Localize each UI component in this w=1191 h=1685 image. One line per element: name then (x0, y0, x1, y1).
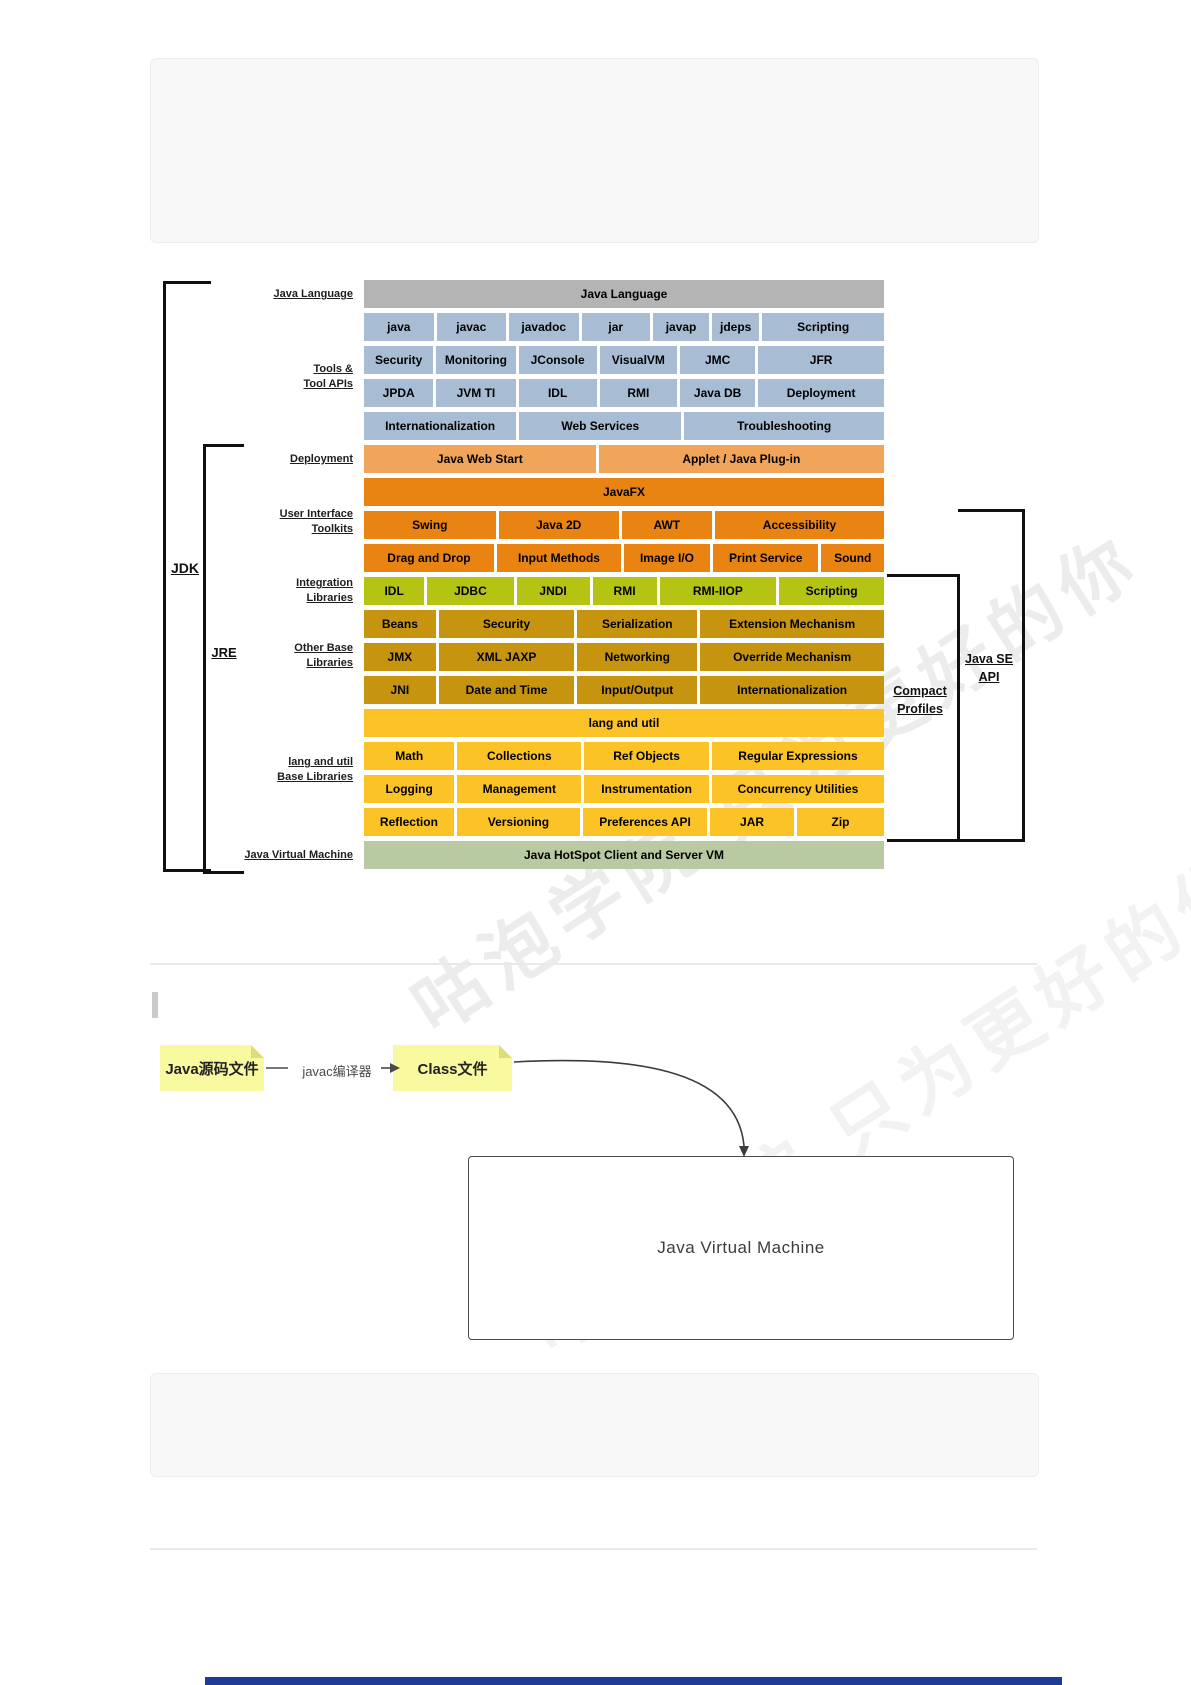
diagram-row: Java HotSpot Client and Server VM (364, 841, 884, 869)
diagram-cell: Internationalization (700, 676, 884, 704)
diagram-cell: Accessibility (715, 511, 884, 539)
java-source-note: Java源码文件 (160, 1045, 264, 1091)
diagram-cell: Security (364, 346, 433, 374)
diagram-cell: Print Service (713, 544, 819, 572)
diagram-cell: XML JAXP (439, 643, 575, 671)
diagram-row: javajavacjavadocjarjavapjdepsScripting (364, 313, 884, 341)
diagram-cell: JVM TI (436, 379, 515, 407)
diagram-row: InternationalizationWeb ServicesTroubles… (364, 412, 884, 440)
diagram-cell: JAR (710, 808, 794, 836)
diagram-cell: javadoc (509, 313, 579, 341)
diagram-cell: Internationalization (364, 412, 516, 440)
diagram-row: MathCollectionsRef ObjectsRegular Expres… (364, 742, 884, 770)
class-file-note-label: Class文件 (417, 1058, 487, 1079)
diagram-cell: Java HotSpot Client and Server VM (364, 841, 884, 869)
diagram-cell: lang and util (364, 709, 884, 737)
jre-label: JRE (205, 645, 243, 660)
diagram-row: Java Language (364, 280, 884, 308)
diagram-cell: Monitoring (436, 346, 515, 374)
diagram-cell: javap (653, 313, 709, 341)
jvm-box-label: Java Virtual Machine (657, 1238, 825, 1258)
diagram-row: IDLJDBCJNDIRMIRMI-IIOPScripting (364, 577, 884, 605)
diagram-cell: Logging (364, 775, 454, 803)
javac-compiler-label: javac编译器 (289, 1061, 385, 1080)
horizontal-divider (150, 963, 1037, 965)
diagram-cell: Collections (457, 742, 581, 770)
diagram-cell: Security (439, 610, 575, 638)
diagram-cell: Troubleshooting (684, 412, 884, 440)
diagram-row: SecurityMonitoringJConsoleVisualVMJMCJFR (364, 346, 884, 374)
diagram-row: LoggingManagementInstrumentationConcurre… (364, 775, 884, 803)
class-to-jvm-arrow (514, 1061, 744, 1146)
diagram-cell: Concurrency Utilities (712, 775, 884, 803)
diagram-row: SwingJava 2DAWTAccessibility (364, 511, 884, 539)
diagram-row: Drag and DropInput MethodsImage I/OPrint… (364, 544, 884, 572)
diagram-cell: Regular Expressions (712, 742, 884, 770)
diagram-cell: Networking (577, 643, 697, 671)
diagram-cell: Image I/O (624, 544, 710, 572)
diagram-row: Java Web StartApplet / Java Plug-in (364, 445, 884, 473)
class-file-note: Class文件 (393, 1045, 512, 1091)
diagram-cell: RMI (600, 379, 677, 407)
java-source-note-label: Java源码文件 (165, 1058, 258, 1079)
diagram-cell: Input/Output (577, 676, 697, 704)
quote-marker (152, 992, 158, 1018)
diagram-cell: Math (364, 742, 454, 770)
horizontal-divider (150, 1548, 1037, 1550)
diagram-cell: javac (437, 313, 507, 341)
diagram-cell: JMC (680, 346, 755, 374)
diagram-cell: Extension Mechanism (700, 610, 884, 638)
diagram-row: JPDAJVM TIIDLRMIJava DBDeployment (364, 379, 884, 407)
diagram-cell: Reflection (364, 808, 454, 836)
diagram-cell: Management (457, 775, 581, 803)
compact-profiles-label: CompactProfiles (886, 682, 954, 718)
diagram-cell: Applet / Java Plug-in (599, 445, 884, 473)
diagram-cell: VisualVM (600, 346, 677, 374)
diagram-cell: Scripting (779, 577, 884, 605)
diagram-cell: Java 2D (499, 511, 619, 539)
diagram-cell: RMI (593, 577, 657, 605)
diagram-cell: AWT (622, 511, 712, 539)
diagram-cell: RMI-IIOP (660, 577, 777, 605)
diagram-row: JavaFX (364, 478, 884, 506)
diagram-cell: Override Mechanism (700, 643, 884, 671)
footer-accent-bar (205, 1677, 1062, 1685)
diagram-cell: Java Web Start (364, 445, 596, 473)
diagram-cell: Zip (797, 808, 884, 836)
note-fold-corner (499, 1045, 512, 1058)
top-gray-panel (150, 58, 1039, 243)
diagram-cell: Drag and Drop (364, 544, 494, 572)
diagram-cell: Preferences API (583, 808, 707, 836)
diagram-cell: Input Methods (497, 544, 621, 572)
diagram-cell: Serialization (577, 610, 697, 638)
diagram-row: JNIDate and TimeInput/OutputInternationa… (364, 676, 884, 704)
diagram-cell: JPDA (364, 379, 433, 407)
diagram-cell: jdeps (712, 313, 759, 341)
diagram-cell: JNI (364, 676, 436, 704)
diagram-row: BeansSecuritySerializationExtension Mech… (364, 610, 884, 638)
diagram-row: JMXXML JAXPNetworkingOverride Mechanism (364, 643, 884, 671)
diagram-cell: JavaFX (364, 478, 884, 506)
diagram-cell: Deployment (758, 379, 884, 407)
diagram-row: lang and util (364, 709, 884, 737)
diagram-cell: Versioning (457, 808, 580, 836)
document-page: 咕泡学院 只为更好的你 咕泡学院 只为更好的你 Java Languagejav… (0, 0, 1191, 1685)
diagram-cell: Beans (364, 610, 436, 638)
jvm-box: Java Virtual Machine (468, 1156, 1014, 1340)
diagram-cell: IDL (364, 577, 424, 605)
note-fold-corner (251, 1045, 264, 1058)
diagram-cell: Date and Time (439, 676, 575, 704)
diagram-cell: Java DB (680, 379, 755, 407)
diagram-cell: JNDI (517, 577, 590, 605)
java-se-api-label: Java SEAPI (958, 650, 1020, 686)
diagram-cell: Sound (821, 544, 884, 572)
diagram-cell: jar (582, 313, 651, 341)
diagram-cell: java (364, 313, 434, 341)
diagram-cell: Ref Objects (584, 742, 709, 770)
diagram-cell: Web Services (519, 412, 681, 440)
jdk-label: JDK (164, 560, 206, 576)
diagram-cell: Swing (364, 511, 496, 539)
diagram-cell: JFR (758, 346, 884, 374)
diagram-cell: JDBC (427, 577, 513, 605)
bottom-gray-panel (150, 1373, 1039, 1477)
diagram-row: ReflectionVersioningPreferences APIJARZi… (364, 808, 884, 836)
diagram-cell: Java Language (364, 280, 884, 308)
diagram-cell: Instrumentation (584, 775, 709, 803)
diagram-cell: IDL (519, 379, 597, 407)
diagram-cell: Scripting (762, 313, 884, 341)
diagram-cell: JMX (364, 643, 436, 671)
diagram-cell: JConsole (519, 346, 597, 374)
